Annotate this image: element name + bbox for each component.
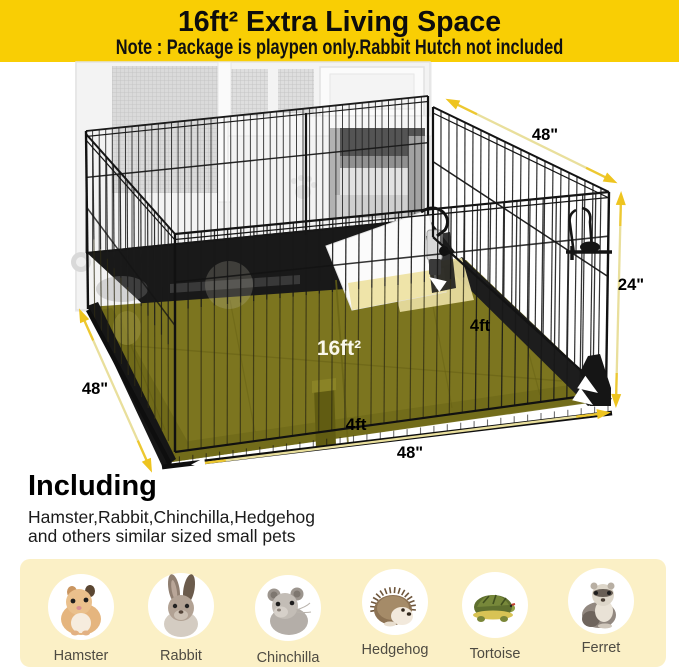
svg-text:24": 24" xyxy=(618,276,644,294)
svg-text:Hamster: Hamster xyxy=(54,648,109,664)
svg-text:Chinchilla: Chinchilla xyxy=(257,650,321,666)
svg-text:4ft: 4ft xyxy=(470,317,491,335)
svg-text:4ft: 4ft xyxy=(346,415,367,434)
svg-text:Hedgehog: Hedgehog xyxy=(362,642,429,658)
svg-text:Rabbit: Rabbit xyxy=(160,648,202,664)
svg-text:Tortoise: Tortoise xyxy=(470,646,521,662)
svg-text:48": 48" xyxy=(397,444,423,462)
svg-text:48": 48" xyxy=(532,126,558,144)
svg-text:16ft²: 16ft² xyxy=(317,337,361,360)
svg-text:Ferret: Ferret xyxy=(582,640,621,656)
svg-text:48": 48" xyxy=(82,380,108,398)
